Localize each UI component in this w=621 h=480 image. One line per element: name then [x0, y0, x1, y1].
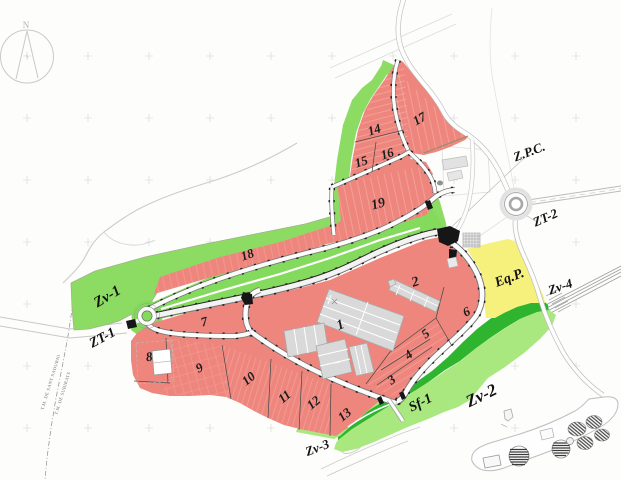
svg-text:N: N [23, 20, 30, 30]
